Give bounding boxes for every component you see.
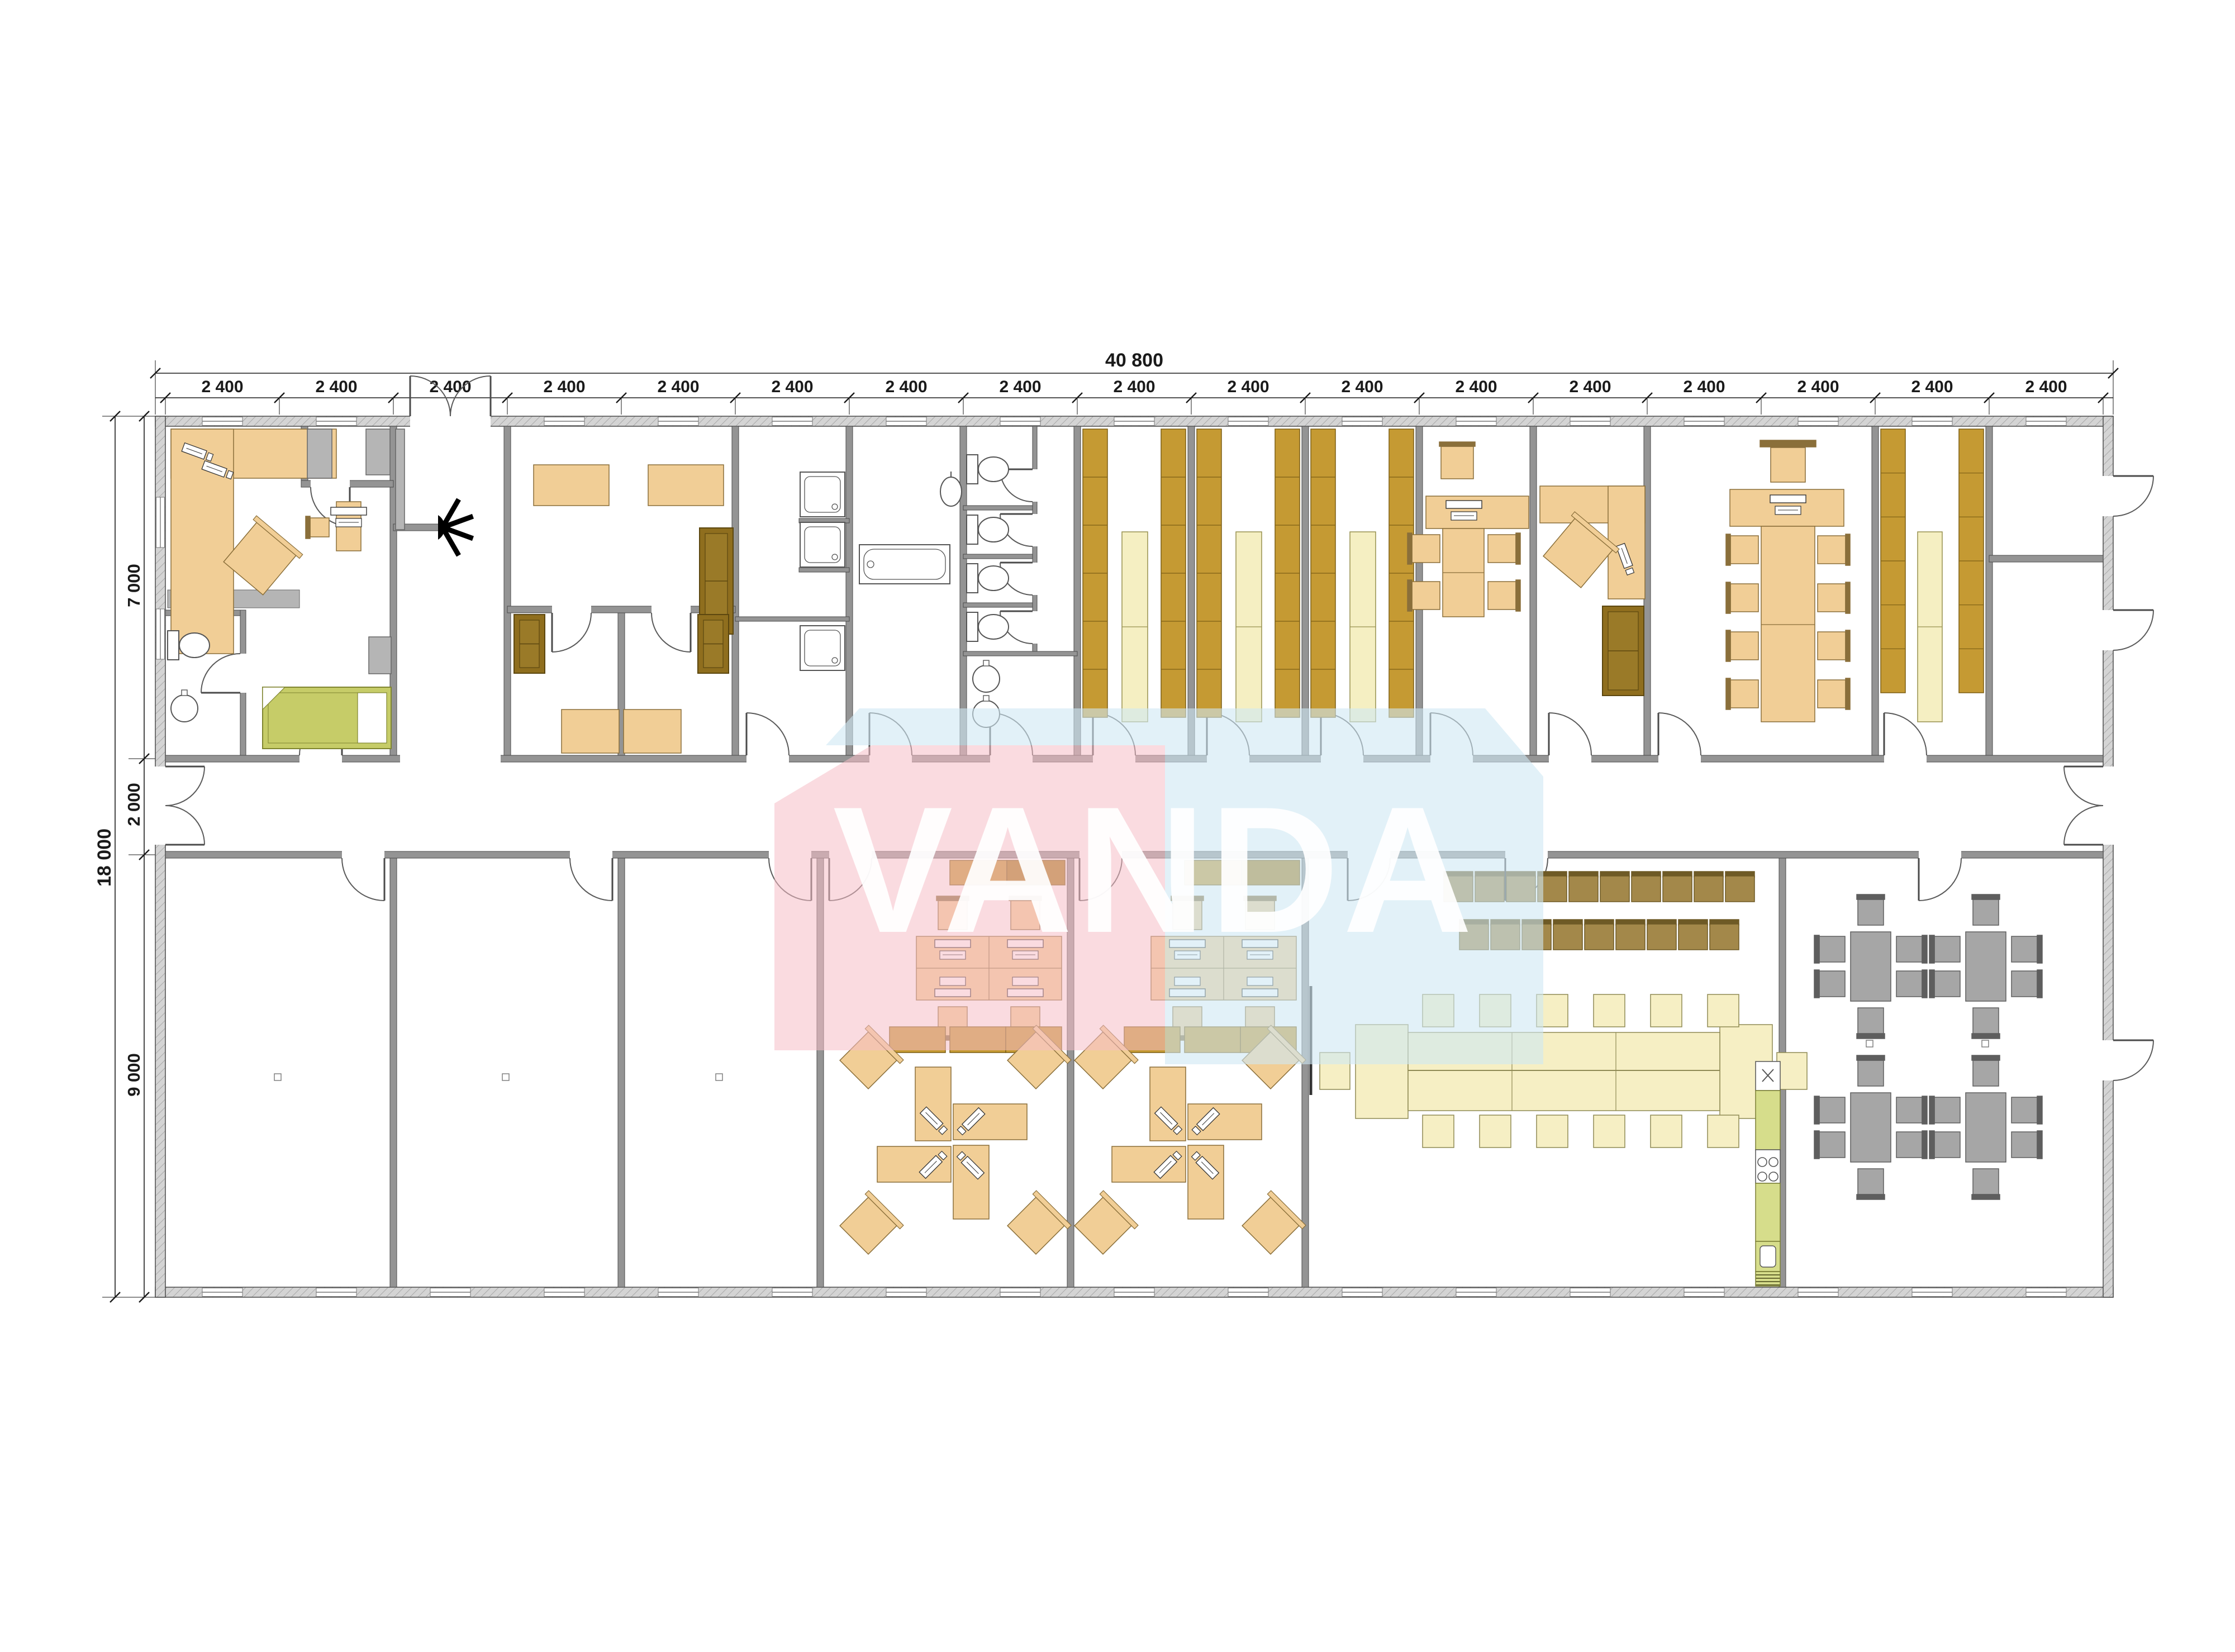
office-chair-icon xyxy=(1071,1191,1138,1258)
chair-back xyxy=(1846,534,1850,565)
wall xyxy=(1530,426,1537,755)
cooktop-burner xyxy=(1769,1172,1778,1181)
chair-icon xyxy=(1600,876,1629,902)
wall xyxy=(1302,426,1309,755)
dim-top-segment-label: 2 400 xyxy=(999,378,1041,396)
door-opening xyxy=(746,755,789,763)
wall xyxy=(155,416,165,1297)
door-swing-arc xyxy=(1919,858,1961,901)
chair-back xyxy=(1726,534,1730,565)
chair-icon xyxy=(1663,876,1692,902)
door-swing-arc xyxy=(2064,767,2103,806)
door-swing-arc xyxy=(552,613,591,652)
dining-table-icon xyxy=(1966,932,2006,1001)
table-icon xyxy=(562,710,619,753)
door-opening xyxy=(1032,469,1038,502)
table-icon xyxy=(624,710,681,753)
toilet-icon xyxy=(978,457,1009,482)
dim-top-segment-label: 2 400 xyxy=(771,378,813,396)
door-opening xyxy=(2103,610,2114,650)
shower-drain xyxy=(832,504,838,510)
chair-back xyxy=(2037,970,2042,998)
door-opening xyxy=(155,767,166,806)
chair-back xyxy=(1726,630,1730,661)
toilet-icon xyxy=(967,455,978,484)
chair-icon xyxy=(1818,536,1846,564)
chair-back xyxy=(1407,580,1412,611)
chair-icon xyxy=(1973,1169,1999,1194)
dim-top-segment-label: 2 400 xyxy=(1797,378,1839,396)
watermark: VANDA xyxy=(774,708,1543,1064)
chair-back xyxy=(2037,1096,2042,1124)
chair-back xyxy=(1857,1194,1885,1199)
cooktop-burner xyxy=(1758,1172,1767,1181)
chair-icon xyxy=(1973,1060,1999,1086)
door-opening xyxy=(2103,1040,2114,1080)
wardrobe-icon xyxy=(369,637,391,674)
sink-icon xyxy=(182,690,187,696)
office-chair-icon xyxy=(1004,1191,1071,1258)
door-opening xyxy=(311,480,350,488)
chair-icon xyxy=(1412,535,1440,563)
wall xyxy=(963,554,1036,559)
door-opening xyxy=(2103,806,2114,845)
chair-icon xyxy=(1819,1097,1845,1123)
toilet-icon xyxy=(179,633,210,658)
door-swing-arc xyxy=(2064,806,2103,845)
kitchen-counter-icon xyxy=(1756,1183,1780,1241)
dim-left-segment-label: 9 000 xyxy=(124,1053,144,1097)
bathtub-icon xyxy=(864,549,945,579)
chair-back xyxy=(306,516,310,539)
chair-icon xyxy=(1651,1115,1682,1148)
chair-back xyxy=(1846,630,1850,661)
chair-icon xyxy=(1651,994,1682,1027)
wall xyxy=(963,651,1077,656)
chair-icon xyxy=(1858,1169,1884,1194)
wall xyxy=(735,617,849,621)
chair-back xyxy=(1516,533,1520,564)
chair-back xyxy=(1929,935,1934,963)
wall xyxy=(1188,426,1195,755)
door-opening xyxy=(299,755,342,763)
door-opening xyxy=(240,654,246,693)
chair-back xyxy=(1846,582,1850,613)
chair-icon xyxy=(1934,936,1960,962)
chair-icon xyxy=(1818,584,1846,612)
chair-icon xyxy=(1730,680,1758,708)
chair-back xyxy=(1814,935,1819,963)
kitchen-sink-icon xyxy=(1760,1246,1776,1267)
monitor-icon xyxy=(331,507,367,515)
door-opening xyxy=(342,851,384,859)
wall xyxy=(963,603,1036,607)
chair-icon xyxy=(1553,924,1582,950)
chair-back xyxy=(1857,1055,1885,1060)
door-opening xyxy=(155,806,166,845)
chair-back xyxy=(2037,1131,2042,1159)
door-swing-arc xyxy=(570,858,612,901)
dining-table-icon xyxy=(1851,932,1891,1001)
chair-icon xyxy=(1819,936,1845,962)
dim-top-segment-label: 2 400 xyxy=(2025,378,2067,396)
chair-back xyxy=(1814,1131,1819,1159)
dim-top-segment-label: 2 400 xyxy=(1455,378,1497,396)
chair-icon xyxy=(1537,1115,1568,1148)
chair-icon xyxy=(1488,535,1516,563)
chair-icon xyxy=(1710,924,1739,950)
chair-icon xyxy=(1569,876,1598,902)
chair-icon xyxy=(2011,971,2037,997)
door-swing-arc xyxy=(1658,713,1701,755)
dim-left-segment-label: 2 000 xyxy=(124,783,144,826)
column-marker xyxy=(274,1074,281,1080)
toilet-icon xyxy=(978,566,1009,591)
sink-icon xyxy=(983,660,989,666)
door-opening xyxy=(1032,611,1038,644)
desk-icon xyxy=(1608,486,1645,599)
chair-icon xyxy=(2011,1097,2037,1123)
chair-back xyxy=(1929,970,1934,998)
dim-top-segment-label: 2 400 xyxy=(1341,378,1383,396)
door-swing-arc xyxy=(652,613,691,652)
chair-icon xyxy=(1896,1132,1922,1158)
chair-icon xyxy=(310,518,329,537)
wall xyxy=(1986,426,1993,755)
monitor-icon xyxy=(1770,495,1806,503)
dim-top-segment-label: 2 400 xyxy=(1569,378,1611,396)
door-opening xyxy=(1032,563,1038,595)
dim-top-segment-label: 2 400 xyxy=(885,378,927,396)
dim-top-segment-label: 2 400 xyxy=(429,378,471,396)
watermark-blue-top-shape xyxy=(826,708,1165,745)
chair-back xyxy=(2037,935,2042,963)
chair-icon xyxy=(1973,899,1999,925)
dim-top-segment-label: 2 400 xyxy=(1227,378,1269,396)
chair-back xyxy=(1972,1034,2000,1039)
door-opening xyxy=(570,851,612,859)
chair-icon xyxy=(1818,632,1846,660)
door-swing-arc xyxy=(2113,1040,2153,1080)
toilet-icon xyxy=(967,612,978,641)
column-marker xyxy=(1866,1040,1873,1047)
wall xyxy=(618,858,625,1287)
wall xyxy=(2103,416,2113,1297)
bathtub-drain xyxy=(867,561,874,568)
dining-table-icon xyxy=(1966,1093,2006,1162)
chair-icon xyxy=(1819,971,1845,997)
dim-top-segment-label: 2 400 xyxy=(201,378,243,396)
watermark-text: VANDA xyxy=(833,770,1476,970)
chair-icon xyxy=(1708,1115,1739,1148)
chair-icon xyxy=(1858,899,1884,925)
wall xyxy=(504,426,511,755)
door-opening xyxy=(1919,851,1961,859)
dim-top-segment-label: 2 400 xyxy=(1911,378,1953,396)
sink-icon xyxy=(983,696,989,701)
bed-pillow xyxy=(358,693,387,743)
conference-table-icon xyxy=(1761,526,1815,722)
office-chair-icon xyxy=(836,1191,903,1258)
chair-icon xyxy=(1725,876,1754,902)
floor-plan-page: 40 800 2 4002 4002 4002 4002 4002 4002 4… xyxy=(0,0,2235,1652)
dining-table-icon xyxy=(1851,1093,1891,1162)
chair-icon xyxy=(1678,924,1708,950)
wall xyxy=(390,858,397,1287)
wall xyxy=(799,568,849,572)
shower-drain xyxy=(832,554,838,560)
dim-top-segment-label: 2 400 xyxy=(1113,378,1155,396)
door-swing-arc xyxy=(201,654,240,693)
chair-icon xyxy=(1616,924,1645,950)
sink-icon xyxy=(940,477,962,506)
chair-icon xyxy=(1585,924,1614,950)
chair-icon xyxy=(2011,936,2037,962)
office-chair-icon xyxy=(1540,512,1619,591)
chair-back xyxy=(1814,970,1819,998)
toilet-icon xyxy=(967,564,978,593)
wall-opening xyxy=(400,755,501,763)
dim-top-segment-label: 2 400 xyxy=(657,378,699,396)
wall xyxy=(1074,426,1081,755)
chair-icon xyxy=(1708,994,1739,1027)
toilet-icon xyxy=(168,631,179,660)
door-opening xyxy=(552,606,591,613)
wall xyxy=(1872,426,1879,755)
dim-top-segment-label: 2 400 xyxy=(543,378,585,396)
chair-icon xyxy=(1934,971,1960,997)
chair-icon xyxy=(1594,994,1625,1027)
column-marker xyxy=(1982,1040,1989,1047)
toilet-icon xyxy=(978,615,1009,639)
column-marker xyxy=(502,1074,509,1080)
sink-icon xyxy=(171,695,198,722)
chair-back xyxy=(1407,533,1412,564)
door-opening xyxy=(1884,755,1927,763)
chair-icon xyxy=(1441,446,1473,479)
wardrobe-icon xyxy=(307,429,332,478)
chair-icon xyxy=(1594,1115,1625,1148)
wall xyxy=(1989,555,2103,562)
chair-back xyxy=(1972,1194,2000,1199)
door-swing-arc xyxy=(165,767,205,806)
chair-icon xyxy=(1423,1115,1454,1148)
chair-icon xyxy=(1730,536,1758,564)
chair-icon xyxy=(1934,1097,1960,1123)
chair-back xyxy=(1857,1034,1885,1039)
counter xyxy=(234,590,299,608)
door-opening xyxy=(1549,755,1591,763)
shower-drain xyxy=(832,658,838,663)
door-opening xyxy=(450,416,491,427)
chair-icon xyxy=(1896,1097,1922,1123)
door-swing-arc xyxy=(746,713,789,755)
door-swing-arc xyxy=(165,806,205,845)
wall xyxy=(960,426,967,755)
chair-icon xyxy=(1730,584,1758,612)
door-swing-arc xyxy=(1549,713,1591,755)
chair-icon xyxy=(1480,1115,1511,1148)
toilet-icon xyxy=(967,515,978,544)
chair-back xyxy=(1439,442,1475,446)
sink-icon xyxy=(973,665,1000,692)
dim-left-segment-label: 7 000 xyxy=(124,564,144,607)
office-chair-icon xyxy=(1239,1191,1306,1258)
door-opening xyxy=(1658,755,1701,763)
chair-icon xyxy=(1934,1132,1960,1158)
chair-icon xyxy=(1730,632,1758,660)
door-opening xyxy=(410,416,450,427)
door-swing-arc xyxy=(2113,610,2153,650)
dim-top-segment-label: 2 400 xyxy=(315,378,357,396)
chair-icon xyxy=(2011,1132,2037,1158)
cooktop-burner xyxy=(1769,1158,1778,1167)
chair-icon xyxy=(1632,876,1661,902)
wardrobe-icon xyxy=(366,429,390,475)
chair-back xyxy=(1929,1131,1934,1159)
dim-top-segment-label: 2 400 xyxy=(1683,378,1725,396)
chair-icon xyxy=(1818,680,1846,708)
chair-icon xyxy=(1412,582,1440,610)
chair-icon xyxy=(1488,582,1516,610)
table-icon xyxy=(534,465,609,506)
chair-back xyxy=(1814,1096,1819,1124)
vent-grille-icon xyxy=(1756,1272,1780,1286)
chair-back xyxy=(1857,894,1885,899)
dim-left-total-label: 18 000 xyxy=(94,829,115,887)
cooktop-burner xyxy=(1758,1158,1767,1167)
floor-plan-canvas: 40 800 2 4002 4002 4002 4002 4002 4002 4… xyxy=(0,0,2235,1652)
chair-icon xyxy=(1777,1053,1807,1089)
door-opening xyxy=(2103,476,2114,516)
chair-icon xyxy=(1647,924,1676,950)
kitchen-counter-icon xyxy=(1756,1091,1780,1150)
wardrobe-icon xyxy=(396,429,405,530)
chair-back xyxy=(1922,1096,1927,1124)
chair-back xyxy=(1922,935,1927,963)
chair-back xyxy=(1726,678,1730,710)
chair-icon xyxy=(1771,447,1805,482)
table-icon xyxy=(648,465,724,506)
door-opening xyxy=(1032,514,1038,546)
wall xyxy=(963,506,1036,510)
chair-back xyxy=(1972,1055,2000,1060)
monitor-icon xyxy=(1446,501,1482,508)
chair-back xyxy=(1726,582,1730,613)
chair-icon xyxy=(1858,1008,1884,1034)
chair-back xyxy=(1760,440,1816,447)
chair-icon xyxy=(1858,1060,1884,1086)
wall xyxy=(846,426,853,755)
toilet-icon xyxy=(978,517,1009,542)
chair-back xyxy=(1516,580,1520,611)
chair-icon xyxy=(1896,936,1922,962)
door-swing-arc xyxy=(342,858,384,901)
chair-back xyxy=(1846,678,1850,710)
chair-icon xyxy=(1819,1132,1845,1158)
desk-icon xyxy=(171,429,234,654)
chair-back xyxy=(1972,894,2000,899)
chair-icon xyxy=(1694,876,1723,902)
door-opening xyxy=(652,606,691,613)
chair-back xyxy=(1929,1096,1934,1124)
door-opening xyxy=(2103,767,2114,806)
chair-icon xyxy=(1896,971,1922,997)
dim-top-total-label: 40 800 xyxy=(1105,350,1163,371)
door-swing-arc xyxy=(2113,476,2153,516)
chair-icon xyxy=(1973,1008,1999,1034)
chair-back xyxy=(1922,970,1927,998)
column-marker xyxy=(716,1074,722,1080)
chair-back xyxy=(1922,1131,1927,1159)
